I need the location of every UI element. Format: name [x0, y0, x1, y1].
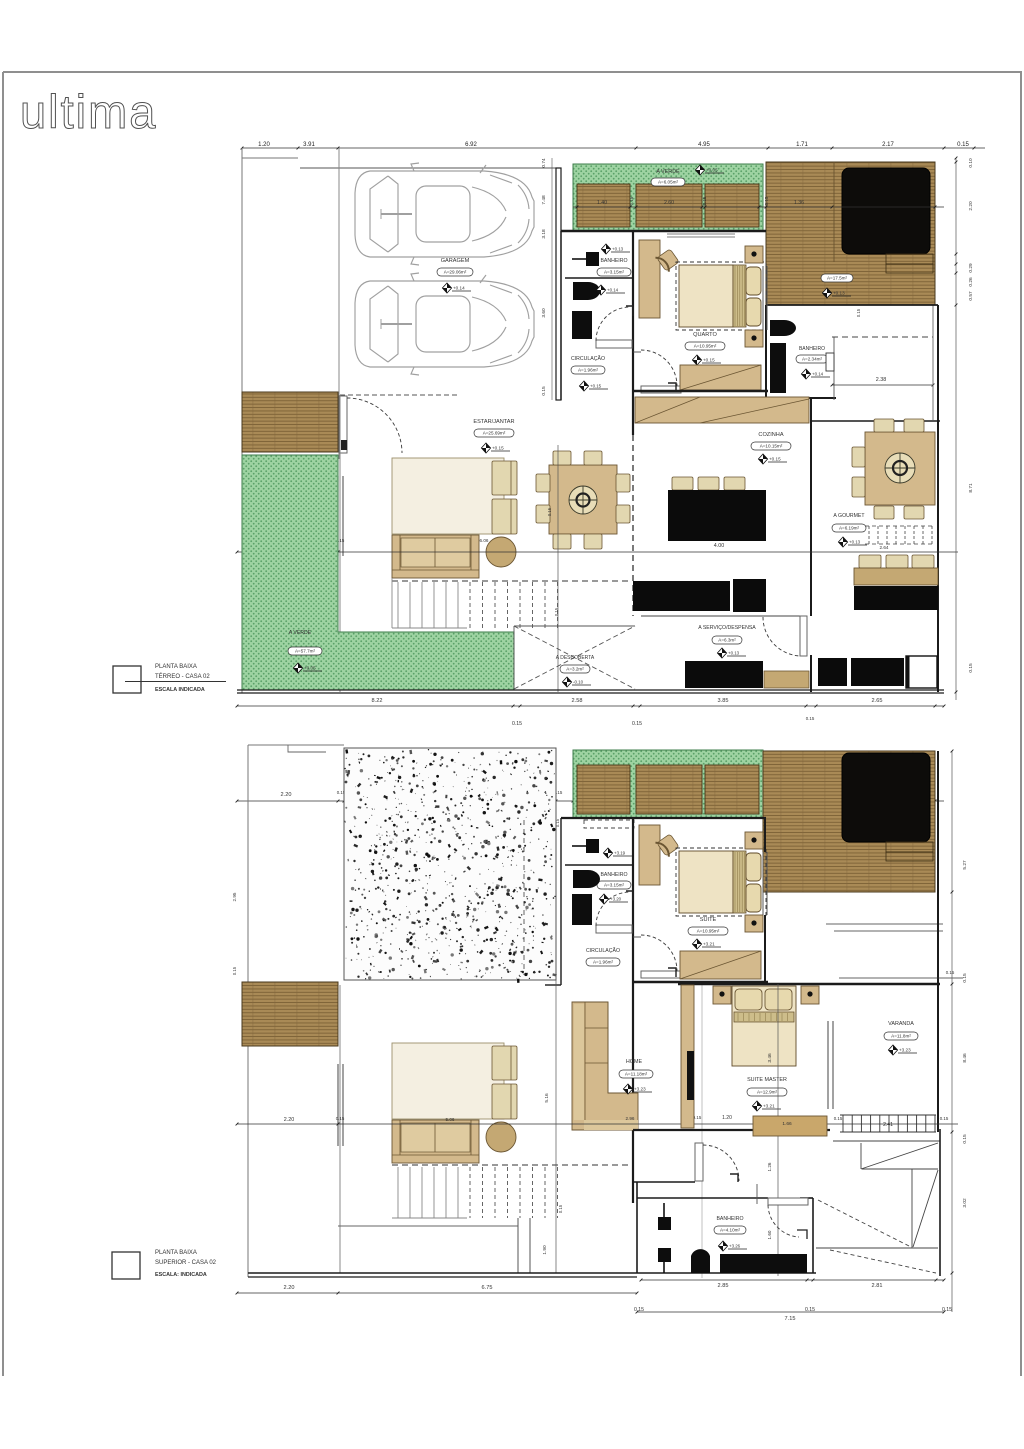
svg-text:6.75: 6.75 [482, 1285, 493, 1291]
svg-text:BANHEIRO: BANHEIRO [600, 258, 627, 264]
svg-text:0.15: 0.15 [962, 973, 968, 983]
svg-text:0.15: 0.15 [942, 1307, 952, 1313]
svg-text:A=4.10m²: A=4.10m² [720, 1228, 741, 1233]
svg-text:-0.10: -0.10 [573, 680, 584, 685]
svg-text:PLANTA BAIXA: PLANTA BAIXA [155, 1250, 197, 1256]
svg-text:+0.13: +0.13 [833, 291, 845, 296]
svg-text:0.15: 0.15 [336, 1116, 345, 1121]
svg-text:CIRCULAÇÃO: CIRCULAÇÃO [586, 947, 620, 954]
svg-text:2.17: 2.17 [882, 142, 894, 148]
svg-text:1.66: 1.66 [782, 1121, 792, 1127]
svg-text:7.48: 7.48 [541, 195, 547, 205]
svg-text:0.15: 0.15 [547, 507, 552, 516]
svg-text:A DESCOBERTA: A DESCOBERTA [556, 655, 595, 661]
svg-text:A=1.96m²: A=1.96m² [578, 368, 599, 373]
svg-text:+0.15: +0.15 [590, 384, 602, 389]
svg-text:+3.23: +3.23 [899, 1048, 911, 1053]
svg-text:2.20: 2.20 [281, 792, 292, 798]
svg-text:A SERVIÇO/DESPENSA: A SERVIÇO/DESPENSA [698, 625, 756, 631]
svg-text:PLANTA BAIXA: PLANTA BAIXA [155, 664, 197, 670]
svg-text:+0.15: +0.15 [492, 446, 504, 451]
svg-text:HOME: HOME [626, 1059, 643, 1065]
svg-text:1.20: 1.20 [258, 142, 270, 148]
svg-text:+0.14: +0.14 [812, 372, 824, 377]
svg-text:BANHEIRO: BANHEIRO [600, 872, 627, 878]
svg-text:+0.15: +0.15 [703, 358, 715, 363]
svg-text:SUITE MASTER: SUITE MASTER [747, 1077, 787, 1083]
svg-text:1.60: 1.60 [767, 1230, 772, 1239]
svg-text:7.15: 7.15 [785, 1316, 796, 1322]
svg-text:8.22: 8.22 [372, 698, 383, 704]
svg-text:0.10: 0.10 [968, 158, 974, 168]
svg-text:1.90: 1.90 [542, 1245, 548, 1255]
svg-text:ESCALA INDICADA: ESCALA INDICADA [155, 687, 205, 693]
svg-text:2.81: 2.81 [872, 1283, 883, 1289]
svg-text:2.20: 2.20 [968, 201, 974, 211]
svg-text:0.74: 0.74 [541, 158, 547, 168]
svg-text:2.64: 2.64 [880, 545, 889, 550]
svg-text:A GOURMET: A GOURMET [833, 513, 865, 519]
svg-text:A=12.9m²: A=12.9m² [757, 1090, 778, 1095]
svg-text:1.20: 1.20 [722, 1115, 732, 1121]
svg-text:+3.20: +3.20 [610, 897, 622, 902]
svg-text:1.40: 1.40 [597, 200, 607, 206]
svg-text:3.85: 3.85 [718, 698, 729, 704]
svg-text:3.02: 3.02 [962, 1198, 968, 1208]
svg-text:0.15: 0.15 [834, 1116, 843, 1121]
svg-text:+0.05: +0.05 [706, 168, 718, 173]
svg-text:0.15: 0.15 [806, 716, 815, 721]
svg-text:0.15: 0.15 [805, 1307, 815, 1313]
svg-text:3.60: 3.60 [541, 308, 547, 318]
svg-text:2.58: 2.58 [572, 698, 583, 704]
svg-text:A=3.2m²: A=3.2m² [566, 667, 584, 672]
svg-text:5.06: 5.06 [446, 1117, 455, 1122]
svg-text:CIRCULAÇÃO: CIRCULAÇÃO [571, 355, 605, 362]
svg-text:+0.13: +0.13 [612, 247, 624, 252]
svg-text:A=6.05m²: A=6.05m² [658, 180, 679, 185]
svg-text:3.91: 3.91 [303, 142, 315, 148]
svg-text:A=6.19m²: A=6.19m² [839, 526, 860, 531]
svg-text:A=29.06m²: A=29.06m² [444, 270, 467, 275]
svg-text:+0.05: +0.05 [304, 666, 316, 671]
svg-text:0.15: 0.15 [232, 966, 237, 975]
svg-text:+3.21: +3.21 [763, 1104, 775, 1109]
svg-text:4.95: 4.95 [698, 142, 710, 148]
svg-text:A=3.15m²: A=3.15m² [604, 883, 625, 888]
svg-text:ESTAR/JANTAR: ESTAR/JANTAR [473, 419, 514, 425]
svg-text:+0.15: +0.15 [769, 457, 781, 462]
svg-text:1.36: 1.36 [794, 200, 804, 206]
svg-text:+3.23: +3.23 [634, 1087, 646, 1092]
svg-text:2.65: 2.65 [872, 698, 883, 704]
svg-text:A VERDE: A VERDE [656, 169, 680, 175]
svg-text:2.96: 2.96 [626, 1116, 635, 1121]
svg-text:+3.19: +3.19 [614, 851, 626, 856]
svg-text:0.15: 0.15 [558, 1204, 563, 1213]
svg-text:A=6.3m²: A=6.3m² [718, 638, 736, 643]
svg-text:QUARTO: QUARTO [693, 332, 717, 338]
svg-text:0.57: 0.57 [968, 291, 974, 301]
svg-text:0.15: 0.15 [541, 386, 547, 396]
svg-text:A=11.8m²: A=11.8m² [891, 1034, 911, 1039]
svg-text:0.15: 0.15 [634, 1307, 644, 1313]
svg-text:4.00: 4.00 [714, 543, 725, 549]
svg-text:2.20: 2.20 [284, 1117, 295, 1123]
svg-text:A=10.15m²: A=10.15m² [760, 444, 783, 449]
svg-text:0.29: 0.29 [968, 263, 974, 273]
svg-text:BANHEIRO: BANHEIRO [716, 1216, 743, 1222]
svg-text:+0.13: +0.13 [849, 540, 861, 545]
svg-text:A=1.96m²: A=1.96m² [593, 960, 614, 965]
svg-text:6.06: 6.06 [480, 538, 489, 543]
svg-text:BANHEIRO: BANHEIRO [799, 346, 825, 352]
svg-text:A=25.69m²: A=25.69m² [483, 431, 506, 436]
svg-text:8.46: 8.46 [962, 1053, 968, 1063]
svg-text:ESCALA: INDICADA: ESCALA: INDICADA [155, 1272, 207, 1278]
svg-text:0.15: 0.15 [940, 1116, 949, 1121]
svg-text:1.71: 1.71 [796, 142, 808, 148]
svg-text:0.15: 0.15 [764, 196, 769, 205]
svg-text:0.15: 0.15 [957, 142, 969, 148]
svg-text:5.27: 5.27 [962, 860, 968, 870]
svg-text:A VERDE: A VERDE [289, 630, 312, 636]
svg-text:1.26: 1.26 [767, 1162, 772, 1171]
svg-text:+0.14: +0.14 [607, 288, 619, 293]
svg-text:3.46: 3.46 [767, 1053, 773, 1063]
svg-text:0.15: 0.15 [629, 196, 634, 205]
svg-text:+0.13: +0.13 [728, 651, 740, 656]
svg-text:0.15: 0.15 [632, 721, 642, 727]
svg-text:SUITE: SUITE [700, 917, 717, 923]
svg-text:0.15: 0.15 [968, 663, 974, 673]
svg-text:2.60: 2.60 [664, 200, 674, 206]
svg-text:0.15: 0.15 [512, 721, 522, 727]
svg-text:5.16: 5.16 [544, 1093, 550, 1103]
svg-text:A=3.15m²: A=3.15m² [604, 270, 625, 275]
svg-text:ultima: ultima [20, 85, 157, 138]
svg-text:0.15: 0.15 [702, 196, 707, 205]
svg-text:VARANDA: VARANDA [888, 1021, 914, 1027]
svg-text:A=2.34m²: A=2.34m² [802, 357, 823, 362]
svg-text:A=10.95m²: A=10.95m² [697, 929, 720, 934]
svg-text:+0.14: +0.14 [453, 286, 465, 291]
svg-text:2.41: 2.41 [883, 1122, 893, 1128]
svg-text:0.15: 0.15 [962, 1134, 968, 1144]
svg-text:A=10.95m²: A=10.95m² [694, 344, 717, 349]
svg-text:A=17.5m²: A=17.5m² [827, 276, 848, 281]
svg-text:2.95: 2.95 [232, 892, 237, 901]
svg-text:0.15: 0.15 [856, 308, 861, 317]
svg-text:8.71: 8.71 [968, 483, 974, 493]
svg-text:0.26: 0.26 [968, 277, 974, 287]
svg-text:COZINHA: COZINHA [758, 432, 783, 438]
svg-text:6.92: 6.92 [465, 142, 477, 148]
svg-text:3.18: 3.18 [541, 229, 547, 239]
svg-text:A=11.18m²: A=11.18m² [625, 1072, 648, 1077]
svg-text:+3.26: +3.26 [729, 1244, 741, 1249]
svg-text:GARAGEM: GARAGEM [441, 258, 470, 264]
svg-text:2.85: 2.85 [718, 1283, 729, 1289]
svg-text:SUPERIOR - CASA 02: SUPERIOR - CASA 02 [155, 1260, 217, 1266]
svg-text:A=57.7m²: A=57.7m² [295, 649, 316, 654]
svg-text:2.38: 2.38 [876, 377, 887, 383]
svg-text:2.20: 2.20 [284, 1285, 295, 1291]
svg-text:+3.21: +3.21 [703, 942, 715, 947]
svg-text:0.15: 0.15 [946, 970, 955, 975]
svg-text:TÉRREO - CASA 02: TÉRREO - CASA 02 [155, 673, 210, 680]
